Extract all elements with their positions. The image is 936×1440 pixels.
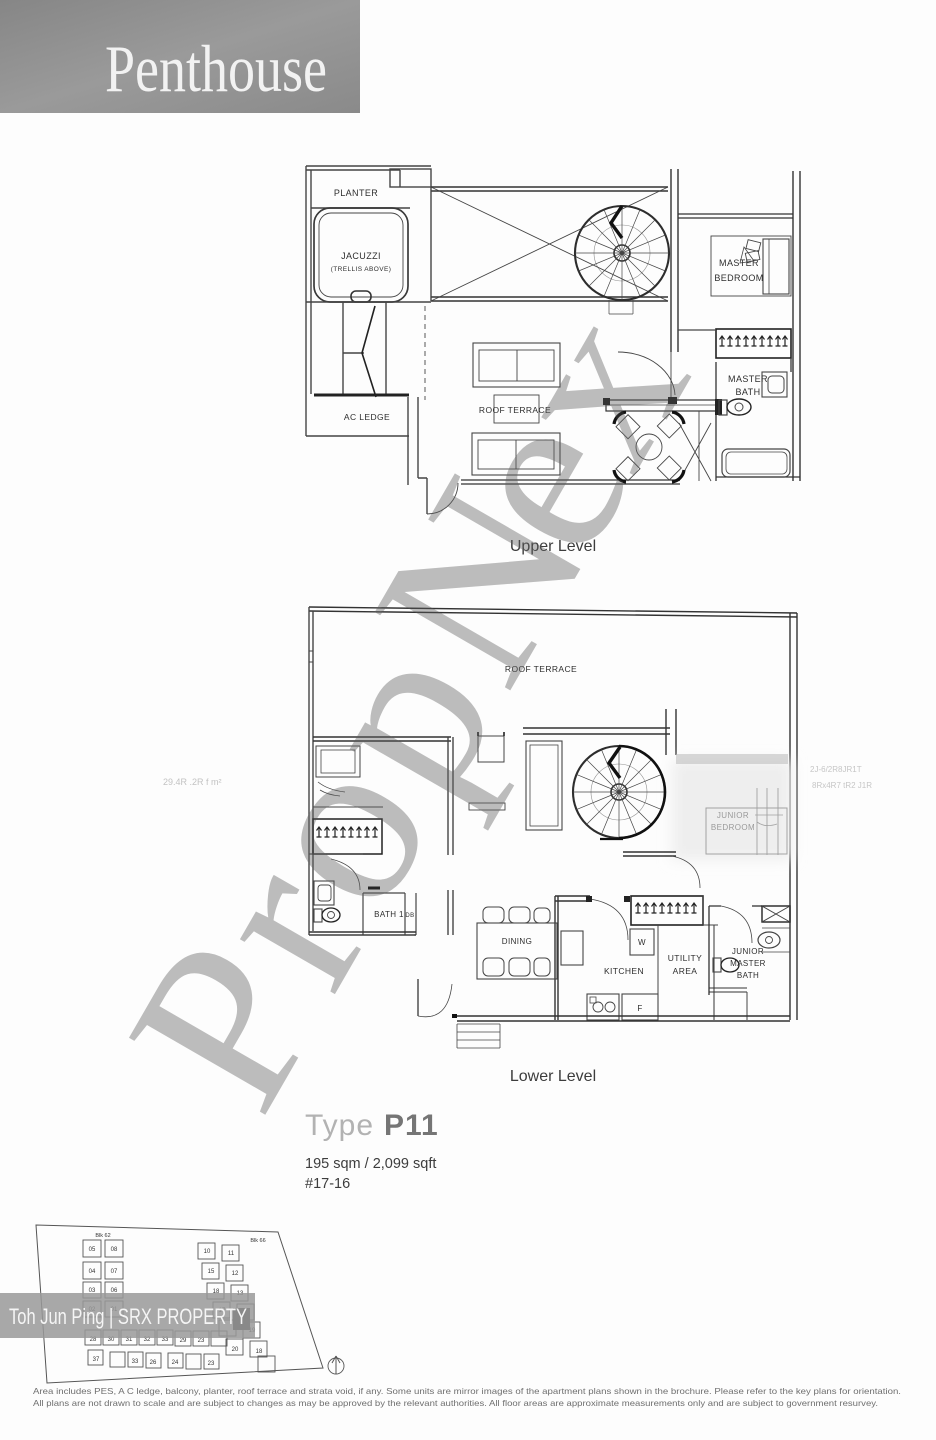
svg-text:Lower Level: Lower Level <box>510 1068 596 1085</box>
svg-text:F: F <box>637 1004 642 1013</box>
svg-text:08: 08 <box>111 1247 118 1253</box>
svg-text:W: W <box>638 938 646 947</box>
svg-text:2J-6/2R8JR1T: 2J-6/2R8JR1T <box>810 765 862 774</box>
svg-text:(TRELLIS ABOVE): (TRELLIS ABOVE) <box>331 266 392 273</box>
svg-text:KITCHEN: KITCHEN <box>604 966 644 976</box>
svg-text:07: 07 <box>111 1269 118 1275</box>
svg-text:29: 29 <box>180 1338 187 1344</box>
svg-text:04: 04 <box>89 1269 96 1275</box>
svg-text:05: 05 <box>89 1247 96 1253</box>
svg-text:JACUZZI: JACUZZI <box>341 251 381 261</box>
svg-text:JUNIOR: JUNIOR <box>717 811 749 820</box>
svg-text:AC LEDGE: AC LEDGE <box>344 412 390 422</box>
svg-text:8Rx4R7 tR2 J1R: 8Rx4R7 tR2 J1R <box>812 781 872 790</box>
svg-text:33: 33 <box>132 1359 139 1365</box>
svg-text:10: 10 <box>204 1249 211 1255</box>
svg-text:Toh Jun Ping | SRX PROPERTY: Toh Jun Ping | SRX PROPERTY <box>9 1304 247 1329</box>
svg-text:BEDROOM: BEDROOM <box>714 273 763 283</box>
svg-text:P11: P11 <box>384 1109 439 1142</box>
svg-text:20: 20 <box>232 1347 239 1353</box>
svg-text:23: 23 <box>198 1338 205 1344</box>
svg-text:12: 12 <box>232 1271 239 1277</box>
svg-text:UTILITY: UTILITY <box>668 953 702 963</box>
svg-text:Type: Type <box>305 1109 374 1142</box>
svg-text:Blk 62: Blk 62 <box>95 1233 110 1239</box>
svg-text:DINING: DINING <box>502 937 532 946</box>
svg-text:18: 18 <box>256 1349 263 1355</box>
svg-text:37: 37 <box>93 1357 100 1363</box>
svg-text:195 sqm / 2,099 sqft: 195 sqm / 2,099 sqft <box>305 1156 436 1172</box>
svg-text:23: 23 <box>208 1361 215 1367</box>
svg-text:Penthouse: Penthouse <box>105 32 327 106</box>
svg-text:#17-16: #17-16 <box>305 1176 350 1192</box>
svg-text:AREA: AREA <box>673 966 698 976</box>
svg-text:11: 11 <box>228 1251 235 1257</box>
svg-text:JUNIOR: JUNIOR <box>732 947 764 956</box>
svg-text:All plans are not drawn to sca: All plans are not drawn to scale and are… <box>33 1398 878 1408</box>
svg-text:MASTER: MASTER <box>728 374 768 384</box>
svg-text:15: 15 <box>208 1269 215 1275</box>
svg-text:26: 26 <box>150 1360 157 1366</box>
svg-text:24: 24 <box>172 1360 179 1366</box>
svg-text:BATH: BATH <box>736 387 761 397</box>
svg-text:BEDROOM: BEDROOM <box>711 823 755 832</box>
svg-text:MASTER: MASTER <box>719 258 759 268</box>
svg-text:Blk 66: Blk 66 <box>250 1238 265 1244</box>
svg-text:MASTER: MASTER <box>730 959 766 968</box>
svg-text:Area includes PES, A C ledge,: Area includes PES, A C ledge, balcony, p… <box>33 1386 901 1396</box>
svg-text:BATH: BATH <box>737 971 759 980</box>
svg-text:PLANTER: PLANTER <box>334 188 378 198</box>
